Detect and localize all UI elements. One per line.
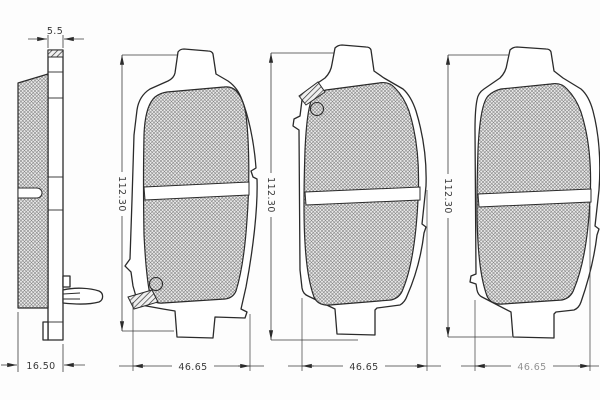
dim-label-backing-thickness: 5.5 <box>47 26 63 37</box>
side-view: 5.5 16.50 <box>1 26 103 372</box>
side-bottom-lug <box>43 322 48 340</box>
side-tab <box>63 276 70 287</box>
front-view-3: 112.30 46.65 <box>441 47 600 373</box>
side-shim-band <box>48 50 63 57</box>
side-groove-slot <box>18 188 42 198</box>
dim-label-pad1-width: 46.65 <box>178 362 207 373</box>
front-view-1: 112.30 46.65 <box>115 49 264 373</box>
brake-pad-drawing: 5.5 16.50 112.30 <box>0 0 600 400</box>
side-backing-plate <box>48 50 63 340</box>
dim-label-total-thickness: 16.50 <box>26 361 55 372</box>
dim-label-pad2-height: 112.30 <box>265 177 276 213</box>
side-wear-indicator-clip <box>63 288 103 304</box>
dim-label-pad3-height: 112.30 <box>442 178 453 214</box>
dim-backing-thickness: 5.5 <box>28 26 84 48</box>
dim-label-pad2-width: 46.65 <box>349 362 378 373</box>
dim-total-thickness: 16.50 <box>1 312 85 372</box>
dim-label-pad1-height: 112.30 <box>116 176 127 212</box>
front-view-2: 112.30 46.65 <box>264 45 441 373</box>
dim-label-pad3-width: 46.65 <box>517 362 546 373</box>
technical-drawing-canvas: 5.5 16.50 112.30 <box>0 0 600 400</box>
